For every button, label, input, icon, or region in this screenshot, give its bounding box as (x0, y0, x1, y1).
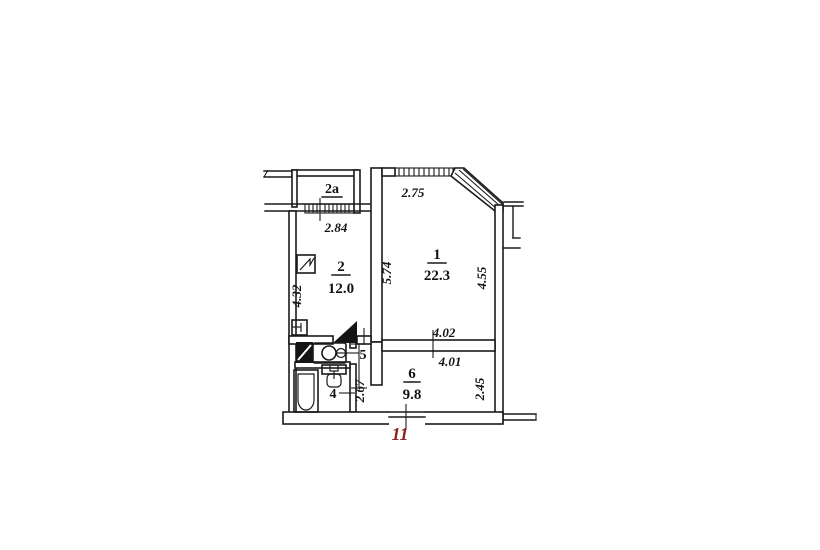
living-area: 22.3 (424, 268, 450, 284)
dim-living-left: 5.74 (379, 261, 394, 284)
corridor-right-wall (371, 342, 382, 385)
hall-area: 9.8 (403, 387, 422, 403)
vent-shaft-icon (297, 255, 315, 273)
left-exterior-wall (289, 211, 296, 420)
dim-hall-right: 2.45 (472, 377, 487, 401)
living-label: 1 (433, 247, 441, 263)
living-window (395, 168, 457, 176)
washing-machine-icon (296, 342, 313, 363)
kitchen-window: 2.84 (265, 198, 371, 235)
dim-living-bottom: 4.02 (432, 325, 456, 340)
balcony-left-wall (292, 170, 297, 207)
kitchen-living-wall (371, 168, 382, 342)
apartment-number: 11 (391, 424, 408, 444)
floor-plan-page: 2a 2.84 (0, 0, 820, 550)
dim-living-window: 2.75 (401, 185, 425, 200)
hall-room: 4.01 6 9.8 2.45 (403, 354, 487, 403)
bathroom: 4 (294, 342, 355, 412)
hall-label: 6 (408, 366, 416, 382)
corridor-label: 5 (360, 348, 367, 363)
kitchen-room: 2 12.0 4.32 (289, 255, 357, 343)
dim-hall-width: 4.01 (438, 354, 462, 369)
bathtub-icon (294, 370, 318, 412)
kitchen-label: 2 (337, 259, 345, 275)
dim-kitchen-depth: 4.32 (289, 284, 304, 308)
living-hall-wall (382, 340, 495, 351)
bathroom-label: 4 (330, 387, 337, 402)
floor-plan-svg: 2a 2.84 (0, 0, 820, 550)
balcony-2a: 2a (264, 170, 360, 213)
wash-basin-icon (313, 343, 347, 363)
dim-kitchen-window: 2.84 (324, 220, 348, 235)
right-exterior-wall (495, 205, 503, 422)
kitchen-area: 12.0 (328, 281, 354, 297)
door-leaf-icon (333, 321, 357, 343)
balcony-right-wall (354, 170, 360, 213)
living-top-wall (382, 168, 395, 176)
neighbor-structure (503, 202, 523, 248)
balcony-top-wall (292, 170, 358, 176)
balcony-label: 2a (325, 182, 339, 197)
dim-corridor-depth: 2.67 (352, 379, 367, 403)
dim-living-right: 4.55 (474, 266, 489, 290)
